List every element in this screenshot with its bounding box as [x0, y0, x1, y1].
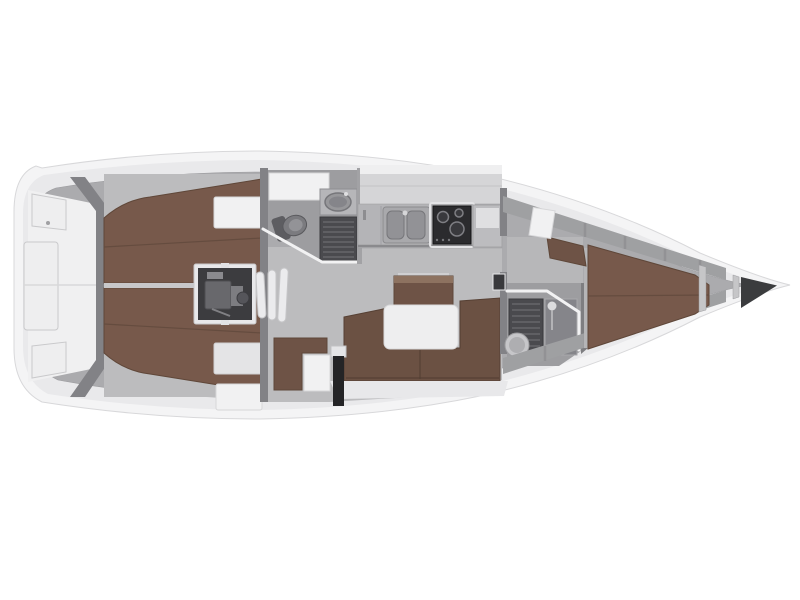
coachroof-edge [360, 165, 502, 174]
deck-fitting [46, 221, 50, 225]
wash-basin-bowl [329, 197, 347, 208]
stove-knob [442, 239, 444, 241]
galley [358, 165, 502, 248]
engine-manifold [207, 272, 223, 279]
companionway-steps [256, 268, 289, 322]
worktop-end-panel [476, 208, 499, 228]
engine-compartment [194, 263, 256, 325]
settee-base [330, 381, 508, 399]
mast-post-cap [331, 346, 346, 357]
galley-faucet [403, 211, 408, 216]
stove-burner [450, 222, 464, 236]
nav-seat [304, 355, 330, 391]
sink-basin-right [407, 211, 425, 239]
stove-burner [438, 212, 449, 223]
wardrobe-locker [529, 207, 555, 238]
stove-burner [455, 209, 463, 217]
chain-locker-bulkhead [733, 275, 739, 299]
frame-latch [221, 320, 229, 325]
wardrobe-locker [214, 197, 262, 228]
step [256, 272, 266, 318]
shower-head [548, 302, 557, 311]
bow-bulkhead [699, 265, 706, 312]
step [268, 270, 276, 320]
sink-basin-left [387, 211, 404, 239]
wardrobe-locker [214, 343, 262, 374]
engine-pulley [237, 292, 249, 304]
stove-knob [436, 239, 438, 241]
mast-post [333, 356, 344, 406]
centerline-gap [104, 283, 194, 288]
stern-locker-panel [24, 242, 58, 330]
toilet-bowl [509, 337, 525, 353]
faucet [344, 192, 348, 196]
stern-lazarette [24, 177, 110, 397]
deck-plan-drawing [0, 0, 800, 600]
frame-latch [221, 263, 229, 268]
sideboard-edge [394, 276, 453, 283]
locker-handle [363, 210, 366, 220]
saloon-table [384, 305, 458, 349]
cabin-entry-step [216, 384, 262, 410]
stern-locker-panel [32, 342, 66, 378]
engine-block [205, 281, 231, 309]
electrical-panel [493, 274, 505, 290]
yacht-deck-plan [0, 0, 800, 600]
stove-knob [448, 239, 450, 241]
shower-grate [320, 217, 357, 262]
